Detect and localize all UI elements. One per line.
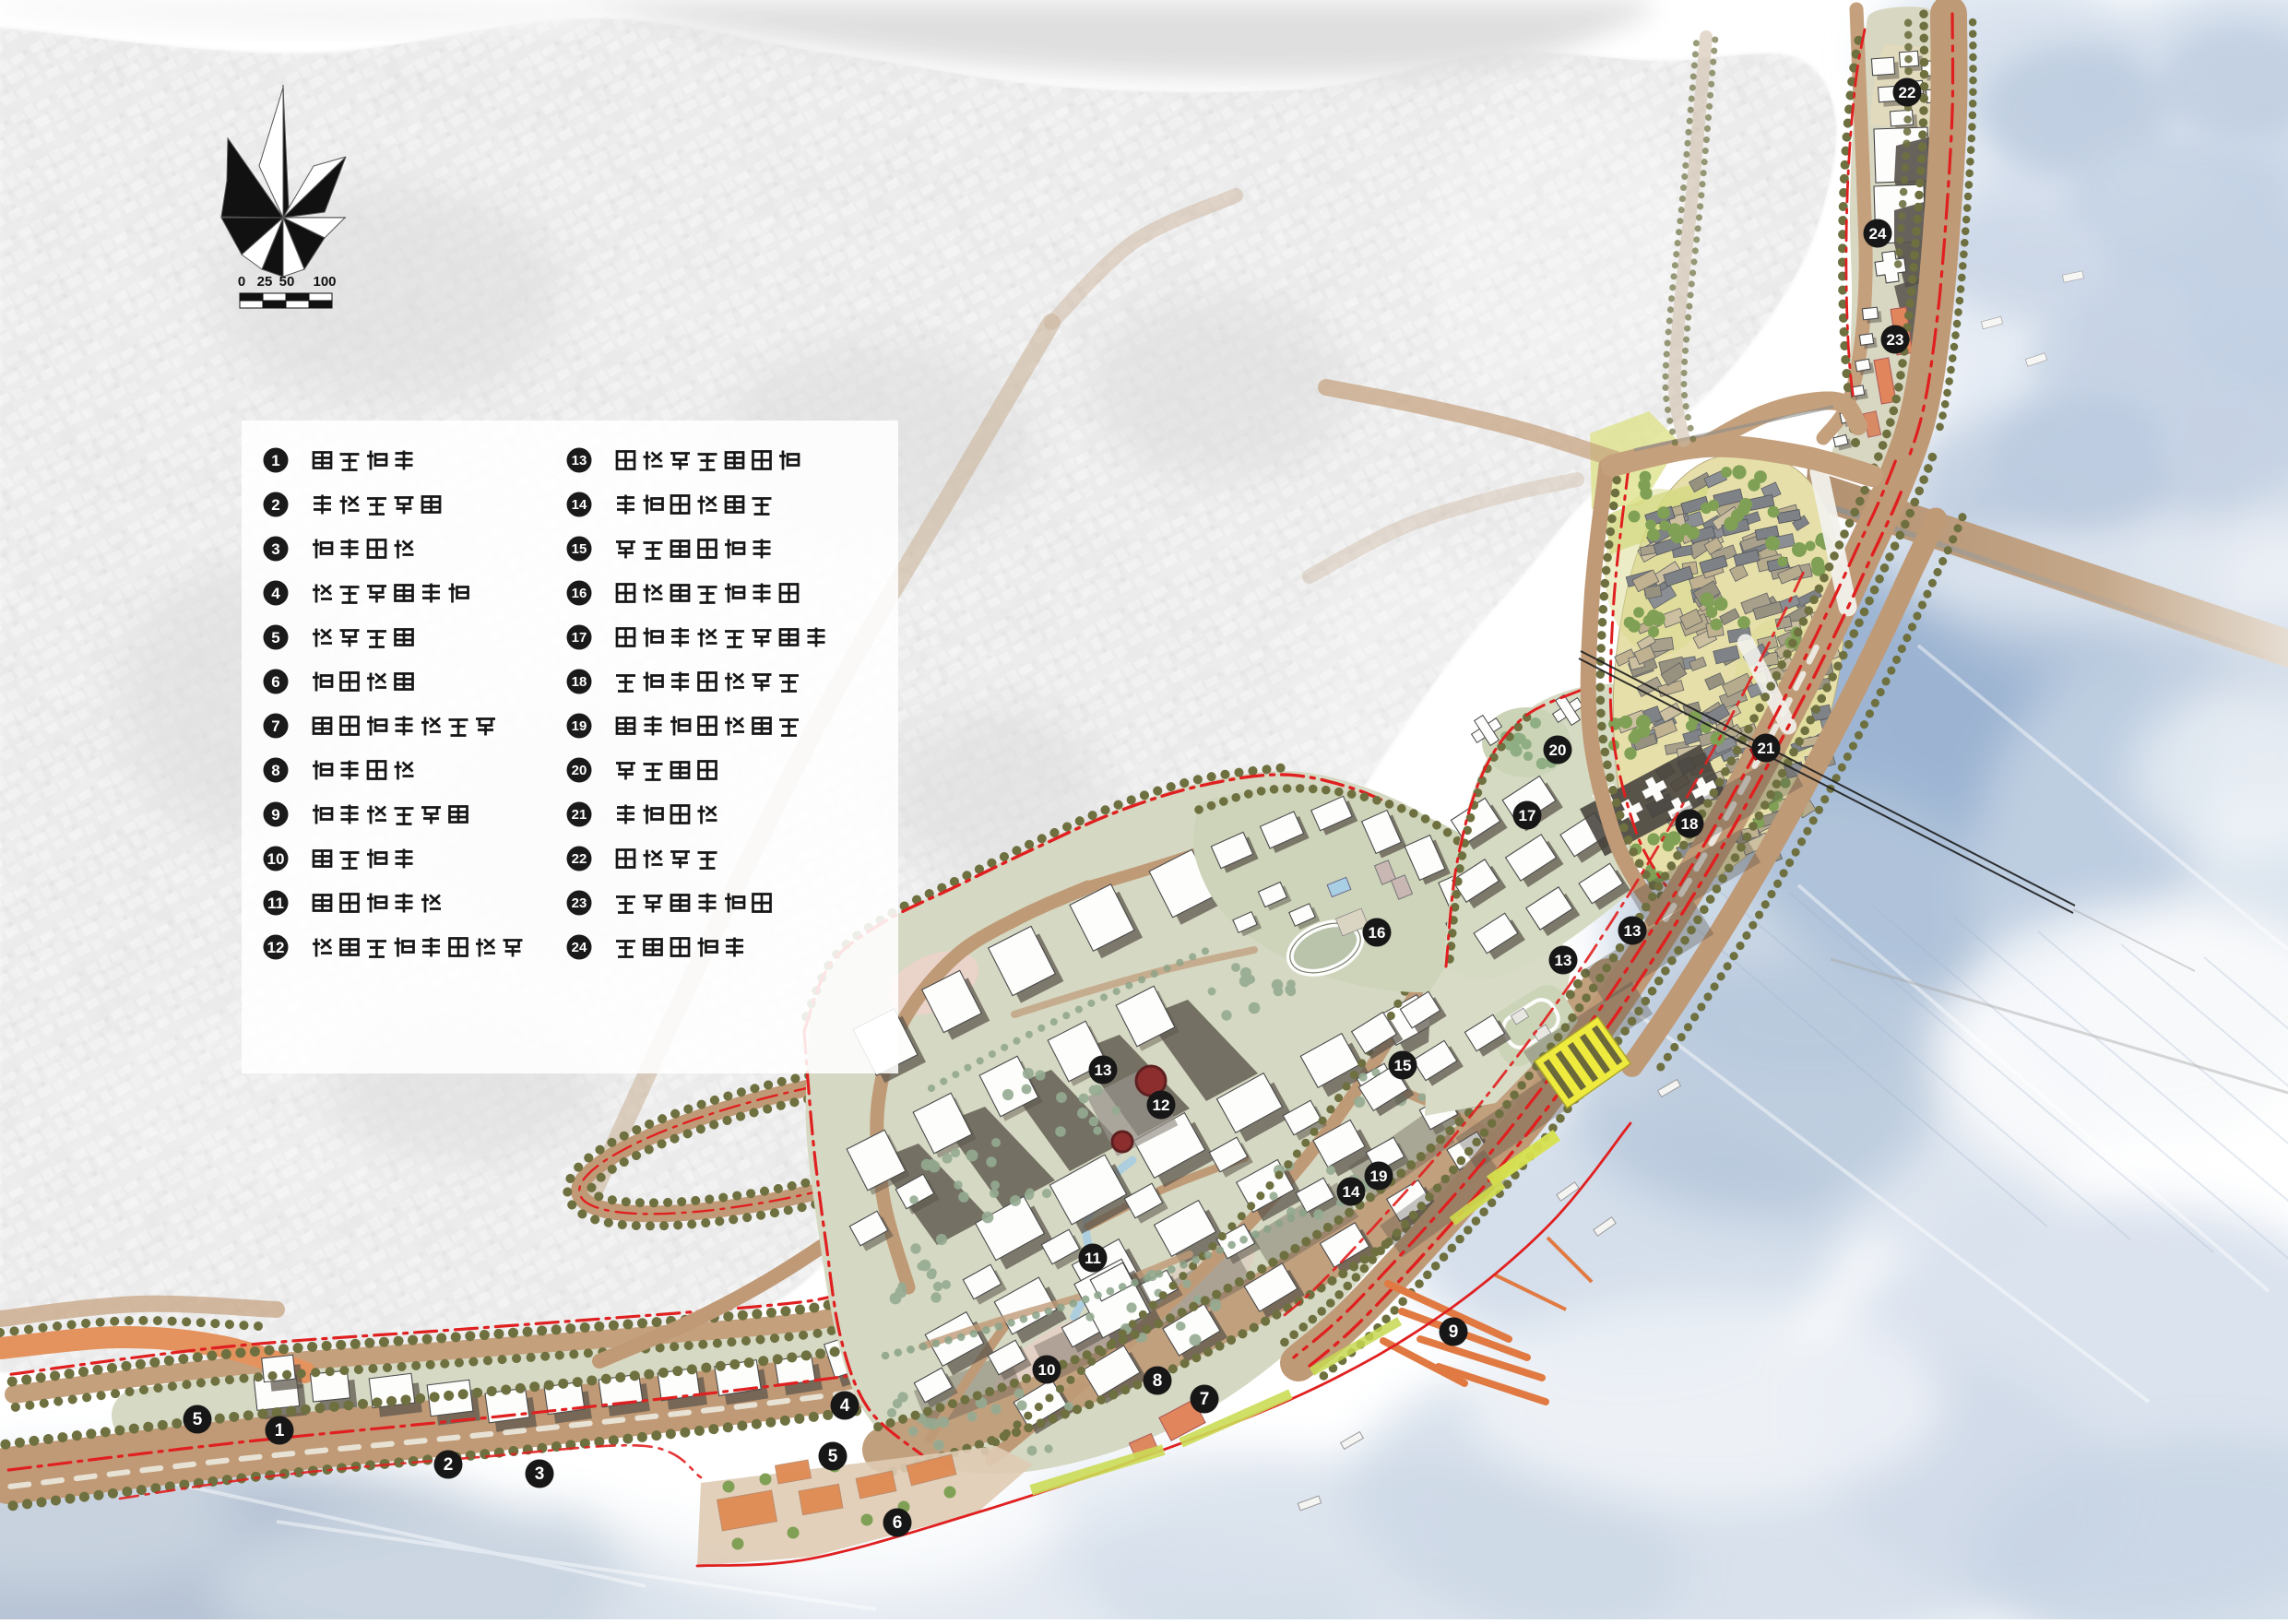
svg-text:2: 2: [444, 1455, 454, 1475]
svg-text:16: 16: [572, 586, 587, 601]
svg-text:3: 3: [535, 1464, 545, 1484]
svg-text:11: 11: [267, 895, 284, 912]
svg-text:24: 24: [1869, 225, 1887, 243]
svg-text:22: 22: [1899, 84, 1916, 101]
svg-text:18: 18: [1681, 815, 1699, 833]
svg-text:18: 18: [572, 674, 587, 690]
svg-text:17: 17: [1519, 807, 1536, 824]
svg-text:50: 50: [279, 274, 295, 290]
svg-text:17: 17: [572, 630, 587, 646]
svg-text:9: 9: [271, 806, 279, 824]
svg-text:10: 10: [1038, 1361, 1056, 1379]
svg-text:22: 22: [572, 851, 587, 867]
svg-text:23: 23: [1887, 331, 1904, 349]
svg-text:6: 6: [271, 673, 279, 691]
svg-text:15: 15: [572, 541, 587, 557]
svg-text:8: 8: [271, 762, 279, 779]
svg-text:4: 4: [271, 585, 280, 602]
svg-text:5: 5: [828, 1447, 838, 1466]
svg-text:6: 6: [893, 1513, 903, 1533]
svg-text:1: 1: [275, 1421, 285, 1440]
svg-text:19: 19: [1370, 1168, 1388, 1185]
svg-text:2: 2: [271, 496, 279, 514]
svg-text:21: 21: [1758, 740, 1775, 757]
svg-text:100: 100: [313, 274, 336, 290]
svg-text:14: 14: [1343, 1183, 1360, 1201]
svg-text:9: 9: [1449, 1322, 1459, 1342]
svg-text:24: 24: [572, 940, 587, 955]
svg-text:25: 25: [257, 274, 273, 290]
svg-text:14: 14: [572, 497, 587, 513]
svg-text:4: 4: [840, 1396, 850, 1416]
svg-text:5: 5: [271, 629, 279, 646]
svg-text:20: 20: [572, 763, 587, 778]
svg-text:11: 11: [1085, 1250, 1101, 1267]
svg-text:5: 5: [193, 1410, 203, 1429]
svg-text:3: 3: [271, 540, 279, 558]
svg-text:23: 23: [572, 895, 587, 911]
svg-text:10: 10: [267, 850, 285, 868]
svg-text:8: 8: [1153, 1371, 1163, 1391]
svg-text:19: 19: [572, 718, 587, 734]
svg-text:13: 13: [1555, 952, 1572, 969]
svg-text:20: 20: [1549, 741, 1567, 759]
svg-text:7: 7: [1200, 1390, 1210, 1409]
svg-text:1: 1: [271, 452, 279, 469]
svg-text:15: 15: [1394, 1057, 1412, 1074]
svg-text:12: 12: [1153, 1096, 1170, 1114]
svg-text:21: 21: [572, 807, 587, 823]
svg-text:16: 16: [1369, 924, 1386, 942]
svg-text:0: 0: [238, 274, 245, 290]
svg-text:13: 13: [1095, 1061, 1112, 1079]
svg-text:12: 12: [267, 939, 285, 956]
svg-text:13: 13: [1624, 922, 1642, 940]
svg-text:13: 13: [572, 453, 587, 468]
svg-text:7: 7: [271, 717, 279, 735]
